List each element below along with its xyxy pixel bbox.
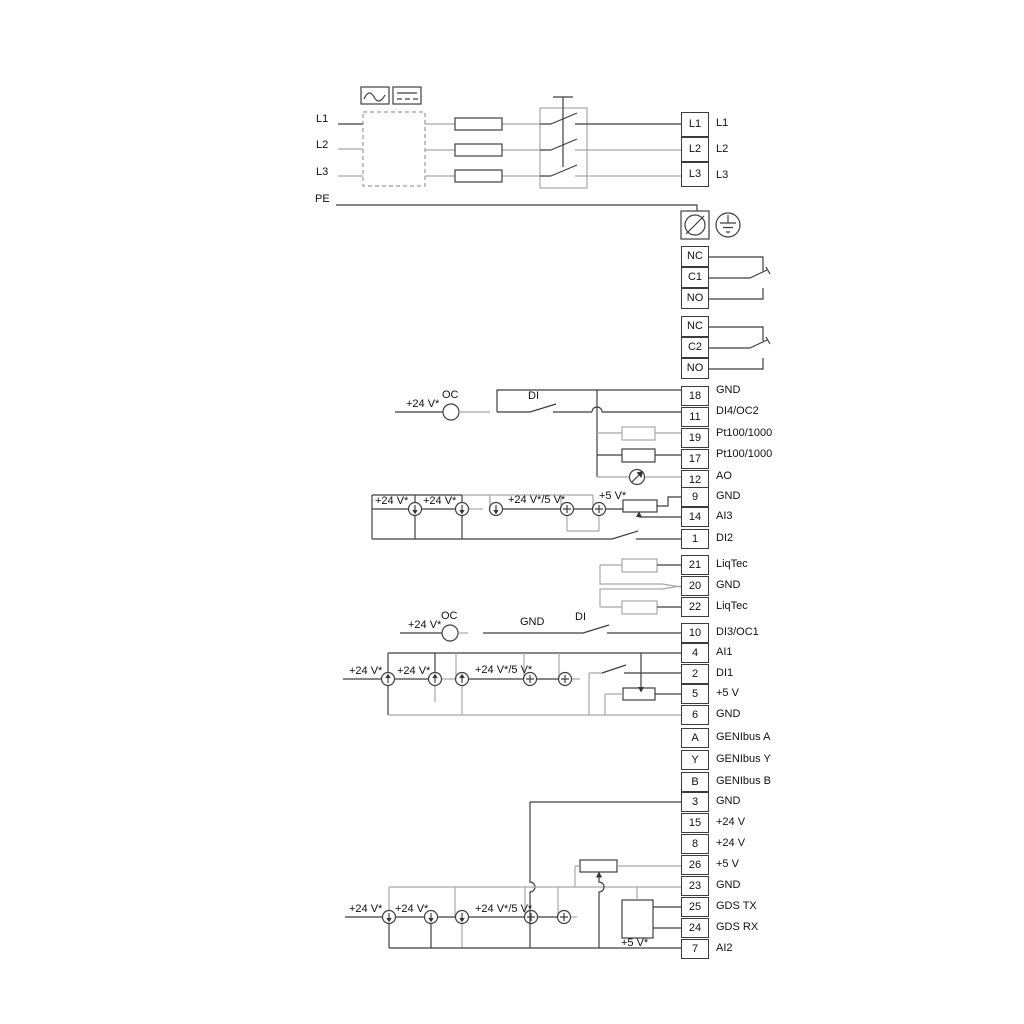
terminal-18-label: GND xyxy=(716,384,740,397)
terminal-8-label: +24 V xyxy=(716,837,745,850)
terminal-y-label: GENIbus Y xyxy=(716,753,771,766)
dc-line-icon xyxy=(393,87,421,104)
ai3-24v-label-a: +24 V* xyxy=(375,496,408,507)
terminal-19: 19 xyxy=(681,428,709,448)
terminal-17-label: Pt100/1000 xyxy=(716,448,772,461)
terminal-14: 14 xyxy=(681,507,709,527)
terminal-23: 23 xyxy=(681,876,709,896)
terminal-9-label: GND xyxy=(716,490,740,503)
terminal-20-label: GND xyxy=(716,579,740,592)
ai2-24v5v-label: +24 V*/5 V* xyxy=(475,904,532,915)
terminal-10: 10 xyxy=(681,623,709,643)
terminal-1-label: DI2 xyxy=(716,532,733,545)
terminal-22: 22 xyxy=(681,597,709,617)
terminal-y: Y xyxy=(681,750,709,770)
ai2-24v-label-a: +24 V* xyxy=(349,904,382,915)
terminal-17: 17 xyxy=(681,449,709,469)
ai3-24v-label-b: +24 V* xyxy=(423,496,456,507)
pump-wiring-diagram: L1 L2 L3 PE L1 L2 L3 L1 L2 L3 NC C1 NO N… xyxy=(0,0,1024,1024)
di4-oc-label: OC xyxy=(442,390,459,401)
terminal-20: 20 xyxy=(681,576,709,596)
ai3-5v-label: +5 V* xyxy=(599,491,626,502)
terminal-11-label: DI4/OC2 xyxy=(716,405,759,418)
terminal-6-label: GND xyxy=(716,708,740,721)
input-label-l1: L1 xyxy=(316,113,328,125)
ac-sine-icon xyxy=(361,87,389,104)
filter-box xyxy=(363,112,425,186)
terminal-10-label: DI3/OC1 xyxy=(716,626,759,639)
terminal-9: 9 xyxy=(681,487,709,507)
earth-ground-icon xyxy=(716,213,740,237)
ai1-24v5v-label: +24 V*/5 V* xyxy=(475,665,532,676)
ai1-24v-label-a: +24 V* xyxy=(349,666,382,677)
terminal-l3-label: L3 xyxy=(716,169,728,182)
terminal-24: 24 xyxy=(681,918,709,938)
terminal-11: 11 xyxy=(681,407,709,427)
wiring-svg xyxy=(0,0,1024,1024)
terminal-26: 26 xyxy=(681,855,709,875)
di3-gnd-label: GND xyxy=(520,617,544,628)
terminal-4: 4 xyxy=(681,643,709,663)
terminal-b-label: GENIbus B xyxy=(716,775,771,788)
terminal-7: 7 xyxy=(681,939,709,959)
terminal-12-label: AO xyxy=(716,470,732,483)
terminal-22-label: LiqTec xyxy=(716,600,748,613)
terminal-l2: L2 xyxy=(681,137,709,162)
terminal-l1: L1 xyxy=(681,112,709,137)
terminal-2-label: DI1 xyxy=(716,667,733,680)
terminal-no2: NO xyxy=(681,358,709,379)
fuses xyxy=(425,118,540,182)
terminal-no1: NO xyxy=(681,288,709,309)
terminal-21: 21 xyxy=(681,555,709,575)
di4-di-label: DI xyxy=(528,391,539,402)
di4-supply-label: +24 V* xyxy=(406,399,439,410)
terminal-6: 6 xyxy=(681,705,709,725)
terminal-15-label: +24 V xyxy=(716,816,745,829)
terminal-l1-label: L1 xyxy=(716,117,728,130)
terminal-23-label: GND xyxy=(716,879,740,892)
terminal-15: 15 xyxy=(681,813,709,833)
terminal-nc1: NC xyxy=(681,246,709,267)
pe-terminal xyxy=(681,211,709,239)
ai2-24v-label-b: +24 V* xyxy=(395,904,428,915)
terminal-4-label: AI1 xyxy=(716,646,733,659)
terminal-2: 2 xyxy=(681,664,709,684)
di3-supply-label: +24 V* xyxy=(408,620,441,631)
terminal-nc2: NC xyxy=(681,316,709,337)
terminal-7-label: AI2 xyxy=(716,942,733,955)
relay1-contact xyxy=(709,257,770,299)
input-label-l2: L2 xyxy=(316,139,328,151)
terminal-1: 1 xyxy=(681,529,709,549)
terminal-5: 5 xyxy=(681,684,709,704)
terminal-8: 8 xyxy=(681,834,709,854)
terminal-c1: C1 xyxy=(681,267,709,288)
di3-oc-label: OC xyxy=(441,611,458,622)
pe-wire xyxy=(336,205,697,211)
terminal-25: 25 xyxy=(681,897,709,917)
terminal-26-label: +5 V xyxy=(716,858,739,871)
mains-input-wires xyxy=(338,124,363,176)
analog-output-meter-icon xyxy=(597,470,681,485)
terminal-14-label: AI3 xyxy=(716,510,733,523)
terminal-a-label: GENIbus A xyxy=(716,731,770,744)
terminal-5-label: +5 V xyxy=(716,687,739,700)
input-label-pe: PE xyxy=(315,193,330,205)
disconnect-switch xyxy=(540,97,681,188)
liqtec-circuit xyxy=(600,559,681,614)
pt100-sensor-lines xyxy=(597,427,681,462)
terminal-19-label: Pt100/1000 xyxy=(716,427,772,440)
terminal-25-label: GDS TX xyxy=(716,900,757,913)
ai2-gds-circuit xyxy=(345,802,681,948)
terminal-l3: L3 xyxy=(681,162,709,187)
ai2-5v-label: +5 V* xyxy=(621,938,648,949)
terminal-18: 18 xyxy=(681,386,709,406)
ai1-di1-circuit xyxy=(343,653,681,715)
input-label-l3: L3 xyxy=(316,166,328,178)
ai3-24v5v-label: +24 V*/5 V* xyxy=(508,495,565,506)
terminal-24-label: GDS RX xyxy=(716,921,758,934)
di3-di-label: DI xyxy=(575,612,586,623)
terminal-3-label: GND xyxy=(716,795,740,808)
relay2-contact xyxy=(709,327,770,369)
terminal-a: A xyxy=(681,728,709,748)
ai1-24v-label-b: +24 V* xyxy=(397,666,430,677)
terminal-3: 3 xyxy=(681,792,709,812)
terminal-b: B xyxy=(681,772,709,792)
terminal-c2: C2 xyxy=(681,337,709,358)
terminal-l2-label: L2 xyxy=(716,143,728,156)
terminal-21-label: LiqTec xyxy=(716,558,748,571)
